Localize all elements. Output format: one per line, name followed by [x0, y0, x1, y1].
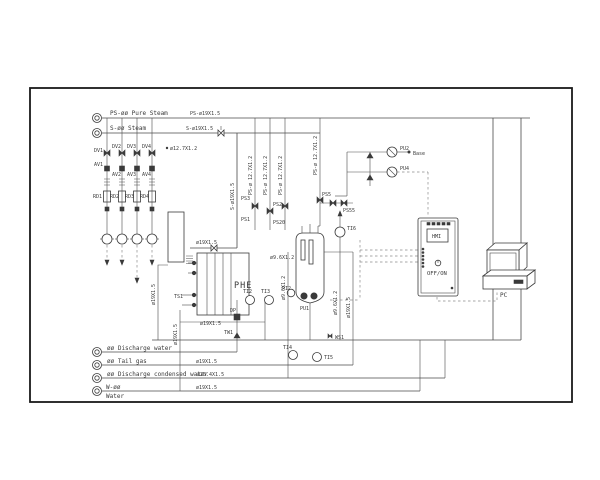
ps20-label: PS20: [273, 220, 285, 226]
pu2-label: PU2: [400, 146, 409, 152]
hmi-label: HMI: [432, 234, 441, 240]
spec-254: ø25.4X1.5: [197, 372, 224, 378]
meter-label: RD1: [93, 194, 102, 200]
hmi-power-label: OFF/ON: [427, 271, 447, 277]
condensed-label: øø Discharge condensed water: [107, 371, 209, 378]
valve-label: DV1: [94, 148, 103, 154]
water-name-label: Water: [106, 393, 124, 400]
pu1-label: PU1: [300, 306, 309, 312]
spec-19-left-riser: ø19X1.5: [151, 284, 157, 305]
ti5-label: TI5: [324, 355, 333, 361]
spec-19-feed: ø19X1.5: [173, 324, 179, 345]
ps55-label: PS55: [343, 208, 355, 214]
ps1-label: PS1: [241, 217, 250, 223]
vent-label: AV1: [94, 162, 103, 168]
ti3-label: TI3: [261, 289, 270, 295]
valve-label: DV4: [142, 144, 151, 150]
dp-label: DP: [230, 308, 236, 314]
ti2-label: TI2: [243, 289, 252, 295]
feed-tank: [168, 212, 184, 262]
ps2-label: PS2: [273, 202, 282, 208]
pure-steam-spec: PS-ø19X1.5: [190, 111, 220, 117]
vent-label: AV3: [127, 172, 136, 178]
spec-12-7: ø12.7X1.2: [170, 146, 197, 152]
spec-96-ti6: ø9.6X1.2: [333, 291, 339, 315]
spec-19-tailgas: ø19X1.5: [196, 359, 217, 365]
meter-label: RD4: [140, 194, 149, 200]
hmi-panel: HMI OFF/ON: [418, 218, 458, 296]
ps3-label: PS3: [241, 196, 250, 202]
ti4-label: TI4: [283, 345, 292, 351]
spec-ps127-4: PS-ø 12.7X1.2: [313, 136, 319, 175]
spec-96-vessel: ø9.6X1.2: [270, 255, 294, 261]
pc-label: PC: [500, 292, 508, 299]
meter-label: RD3: [125, 194, 134, 200]
spec-ps127-2: PS-ø 12.7X1.2: [263, 156, 269, 195]
dose-target-label: Base: [413, 151, 425, 157]
vent-label: AV4: [142, 172, 151, 178]
pu4-label: PU4: [400, 166, 409, 172]
spec-19-water: ø19X1.5: [196, 385, 217, 391]
steam-label: S-øø Steam: [110, 125, 147, 132]
valve-label: DV2: [112, 144, 121, 150]
tail-gas-label: øø Tail gas: [107, 358, 147, 365]
ps5-label: PS5: [322, 192, 331, 198]
spec-19-phe-feed: ø19X1.5: [196, 240, 217, 246]
valve-label: DV3: [127, 144, 136, 150]
ti6-label: TI6: [347, 226, 356, 232]
spec-96-riser: ø9.6X1.2: [281, 276, 287, 300]
steam-spec: S-ø19X1.5: [186, 126, 213, 132]
pid-diagram: PS-øø Pure Steam PS-ø19X1.5 S-øø Steam S…: [0, 0, 600, 480]
spec-ps127-1: PS-ø 12.7X1.2: [248, 156, 254, 195]
spec-s19-vert: S-ø19X1.5: [230, 183, 236, 210]
tw1-label: TW1: [224, 330, 233, 336]
pure-steam-label: PS-øø Pure Steam: [110, 110, 168, 117]
discharge-water-label: øø Discharge water: [107, 345, 172, 352]
water-tag-label: W-øø: [106, 384, 121, 391]
ts1-label: TS1: [174, 294, 183, 300]
pid-drawing-canvas: PS-øø Pure Steam PS-ø19X1.5 S-øø Steam S…: [0, 0, 600, 480]
vent-label: AV2: [112, 172, 121, 178]
meter-label: RD2: [110, 194, 119, 200]
spec-ps127-3: PS-ø 12.7X1.2: [278, 156, 284, 195]
